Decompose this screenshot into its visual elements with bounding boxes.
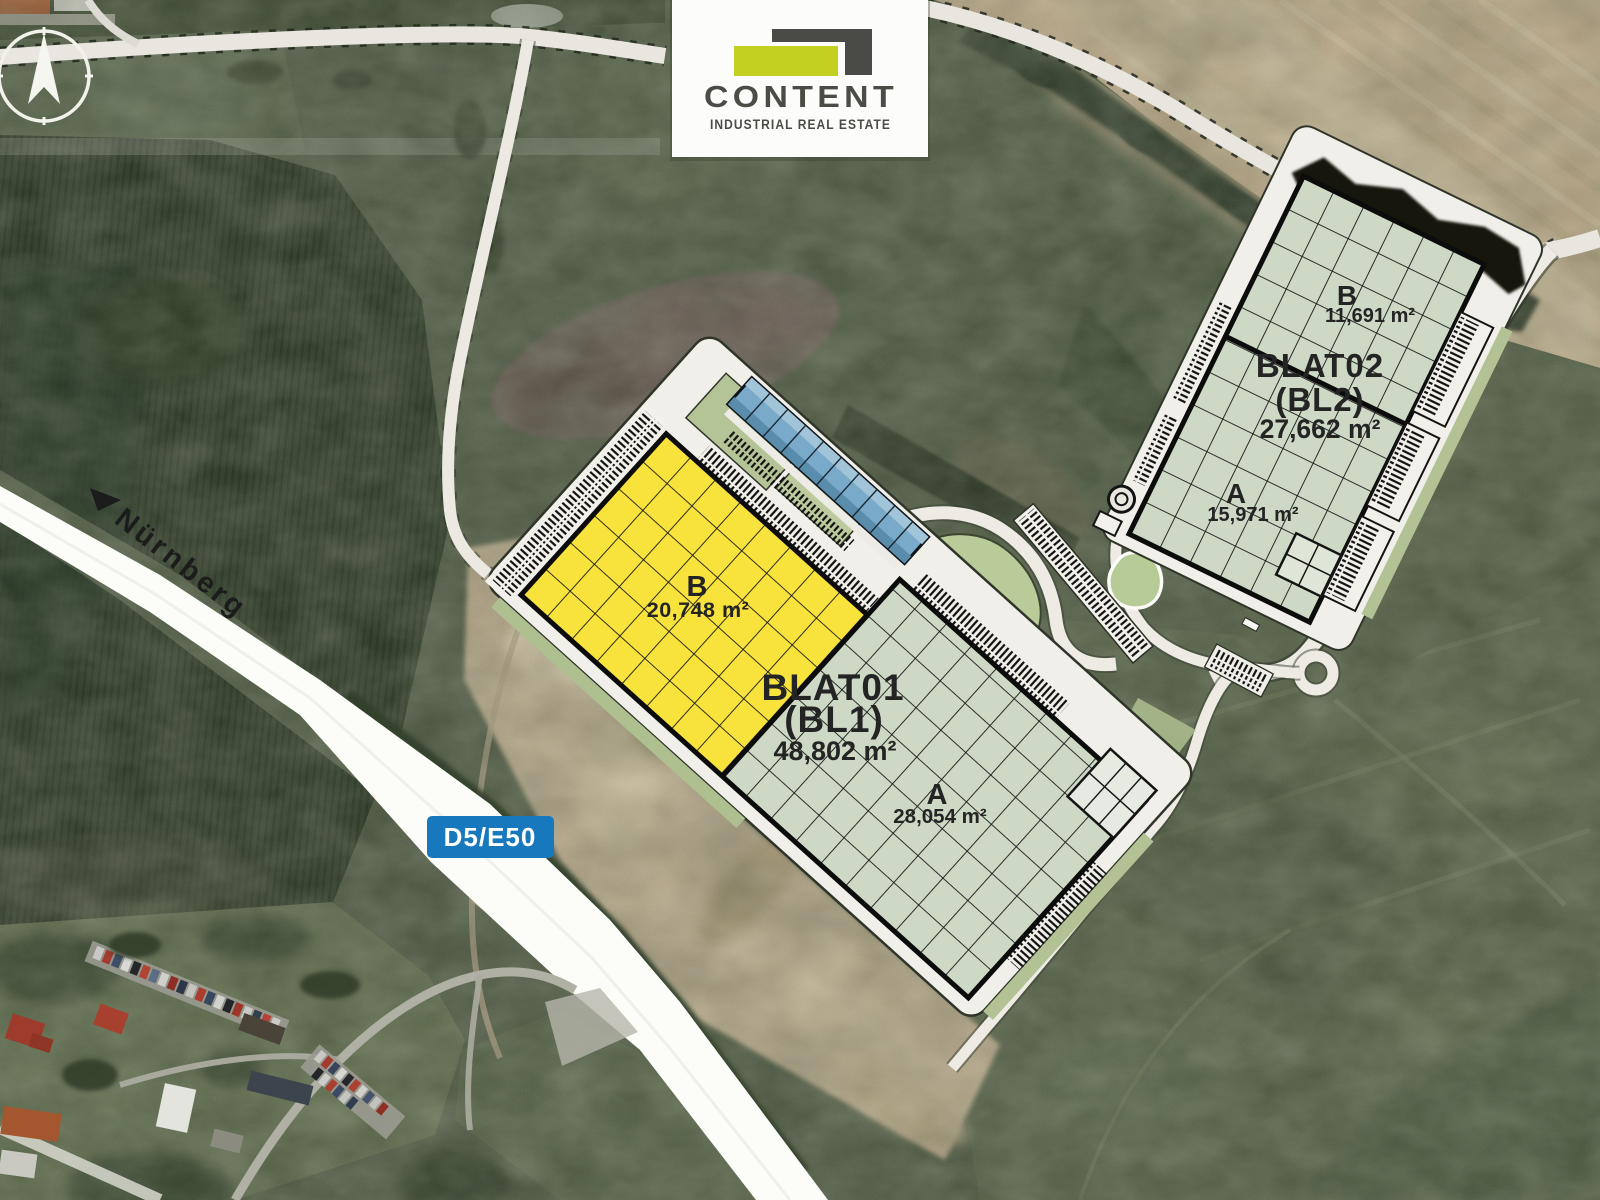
- svg-text:20,748 m²: 20,748 m²: [647, 598, 750, 622]
- svg-text:CONTENT: CONTENT: [704, 79, 898, 114]
- svg-text:D5/E50: D5/E50: [444, 822, 537, 852]
- svg-text:(BL2): (BL2): [1275, 381, 1364, 418]
- svg-text:15,971 m²: 15,971 m²: [1207, 504, 1299, 526]
- svg-text:BLAT02: BLAT02: [1256, 347, 1384, 384]
- svg-text:INDUSTRIAL REAL ESTATE: INDUSTRIAL REAL ESTATE: [710, 117, 891, 132]
- svg-text:(BL1): (BL1): [784, 699, 884, 740]
- svg-text:28,054 m²: 28,054 m²: [893, 805, 987, 828]
- svg-text:27,662 m²: 27,662 m²: [1260, 414, 1381, 444]
- svg-text:11,691 m²: 11,691 m²: [1325, 305, 1415, 327]
- svg-text:48,802 m²: 48,802 m²: [773, 736, 896, 766]
